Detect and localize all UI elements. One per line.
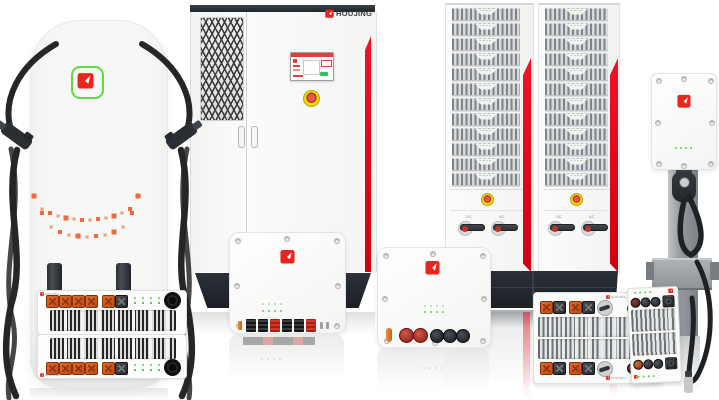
rack-power-module [452,127,520,140]
status-led [150,364,152,366]
rack-power-module [545,22,608,35]
vent-grille [631,308,676,332]
houjing-logo-icon [634,375,638,379]
dc-connector [569,301,582,314]
houjing-logo-icon [425,260,440,275]
status-led [158,297,160,299]
charger-reflection [30,388,168,400]
module-brand: HOUJING [606,295,626,299]
small-power-module [627,286,682,384]
cabinet-door-handle [238,126,245,148]
rack-power-module [545,82,608,95]
status-led [158,364,160,366]
square-connector [665,357,678,370]
cabinet-red-stripe [365,36,371,272]
terminal [326,322,329,329]
terminal [270,319,280,332]
rack-column-2: DC AC [538,3,620,274]
bottom-terminal-row [236,318,340,332]
round-connector [643,359,653,369]
houjing-logo-icon [677,94,691,108]
status-led [142,364,144,366]
ac-input-connector [102,362,115,375]
cabinet-vent-grille [200,17,244,121]
rack-power-module [452,67,520,80]
rack-module-stack [545,7,608,187]
dc-connector [399,328,414,343]
dc-breaker-switch: DC [547,220,577,234]
status-led [134,364,136,366]
output-cable-gland [386,328,392,342]
status-led [134,297,136,299]
rectifier-module-unit: HOUJING [37,334,187,379]
houjing-logo-icon [40,292,44,296]
rack-power-module [545,97,608,110]
screen-green-badge [320,72,328,76]
dc-connector [413,328,428,343]
ac-connector [443,329,457,343]
stripe-reflection [523,312,530,398]
dc-output-connector [59,362,72,375]
round-connector [650,297,660,307]
aux-connector [582,301,595,314]
rack-power-module [545,67,608,80]
docked-charging-gun [672,172,696,202]
rectifier-module-pair: HOUJING [37,290,185,378]
ac-connector [456,329,470,343]
rack-power-module [452,112,520,125]
cooling-fan [164,359,181,376]
dc-connector [540,301,553,314]
square-connector [662,295,675,308]
aux-connector [553,362,566,375]
round-connector [640,297,650,307]
dc-connector [540,362,553,375]
rack-power-module [545,7,608,20]
rack-power-module [545,157,608,170]
rack-column-1: DC AC [445,3,534,274]
rack-power-module [452,172,520,185]
ac-connector [430,329,444,343]
product-collage: HOUJING 厚景HOUJING [0,0,719,400]
dc-output-connector [59,295,72,308]
houjing-logo-icon [325,9,334,18]
wall-mounted-charger-box-3 [651,73,717,170]
rack-emergency-stop [570,193,583,206]
vent-grille [50,310,176,331]
status-led-row [262,303,264,305]
wall-mounted-charger-box-2 [377,247,491,349]
status-led [150,297,152,299]
terminal [238,321,242,330]
houjing-logo-icon [77,72,94,89]
rack-module-stack [452,7,520,187]
module-brand: HOUJING [606,376,626,380]
aux-connector [582,362,595,375]
rack-power-module [545,172,608,185]
dc-output-connector [85,295,98,308]
houjing-logo-icon [280,249,295,264]
dc-breaker-switch: DC [457,220,487,234]
terminal [306,319,316,332]
dc-output-connector [46,295,59,308]
dc-connector [569,362,582,375]
rack-power-module [545,142,608,155]
rack-power-module [452,37,520,50]
rotary-switch [597,300,613,316]
ac-input-connector [102,295,115,308]
emergency-stop-button [303,90,320,107]
rack-emergency-stop [481,193,494,206]
houjing-logo-icon [668,288,673,293]
houjing-logo-icon [606,376,610,380]
rack-power-module [452,157,520,170]
cabinet-hmi-screen [290,52,334,81]
cabinet-door-handle [251,126,258,148]
status-led-row [262,310,264,312]
terminal [282,319,292,332]
dc-output-connector [85,362,98,375]
rotary-switch [597,361,613,377]
vent-grille [632,332,677,356]
rack-power-module [545,37,608,50]
wall-box-1-reflection [229,334,344,389]
status-led-row [634,292,636,294]
rack-red-stripe-2 [610,58,618,272]
terminal [294,319,304,332]
vent-grille [50,338,176,359]
dc-output-connector [72,362,85,375]
rack-power-module [452,97,520,110]
round-connector [633,360,643,370]
status-led-row [675,147,677,149]
cabinet-brand: HOUJING [325,9,372,18]
status-led-row [424,311,426,313]
rack-power-module [452,22,520,35]
aux-connector [115,295,128,308]
wall-box-2-reflection [377,347,489,397]
cooling-fan [164,292,181,309]
rack-power-module [452,52,520,65]
houjing-logo-icon [40,373,44,377]
wall-mounted-charger-box-1 [229,232,346,334]
round-connector [653,359,663,369]
status-led [142,297,144,299]
rack-power-module [452,7,520,20]
terminal [320,322,323,329]
screen-logo [293,59,297,63]
aux-connector [553,301,566,314]
pedestal-crossarm [652,258,712,290]
ac-breaker-switch: AC [490,220,520,234]
houjing-logo-icon [606,295,610,299]
rack-power-module [545,112,608,125]
rack-power-module [545,127,608,140]
rack-power-module [452,82,520,95]
rack-power-module [452,142,520,155]
terminal [258,319,268,332]
status-led-row [638,376,640,378]
charger-logo-frame [71,66,104,99]
status-led-row [424,305,426,307]
aux-connector [115,362,128,375]
rack-power-module [545,52,608,65]
round-connector [630,298,640,308]
ac-breaker-switch: AC [580,220,610,234]
screen-header [291,53,333,57]
rectifier-module-unit: HOUJING [37,290,187,335]
terminal [246,319,256,332]
cabinet-brand-label: HOUJING [336,9,372,18]
module-brand: HOUJING [40,373,60,377]
dc-output-connector [72,295,85,308]
rack-red-stripe-1 [523,58,531,272]
